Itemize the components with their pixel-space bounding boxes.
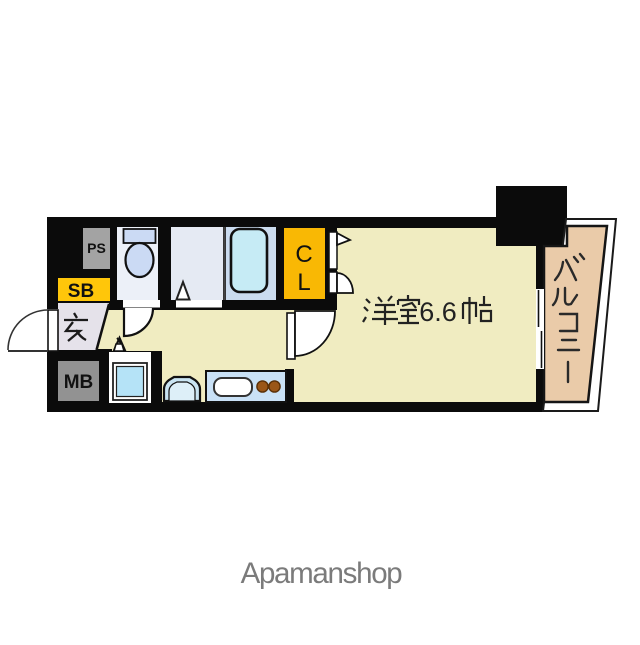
svg-text:L: L <box>297 269 310 296</box>
svg-text:SB: SB <box>68 281 94 302</box>
svg-text:MB: MB <box>64 372 94 393</box>
svg-text:6.6: 6.6 <box>419 297 457 327</box>
svg-text:PS: PS <box>87 240 106 256</box>
svg-text:Apamanshop: Apamanshop <box>241 557 403 590</box>
svg-text:C: C <box>295 241 312 268</box>
